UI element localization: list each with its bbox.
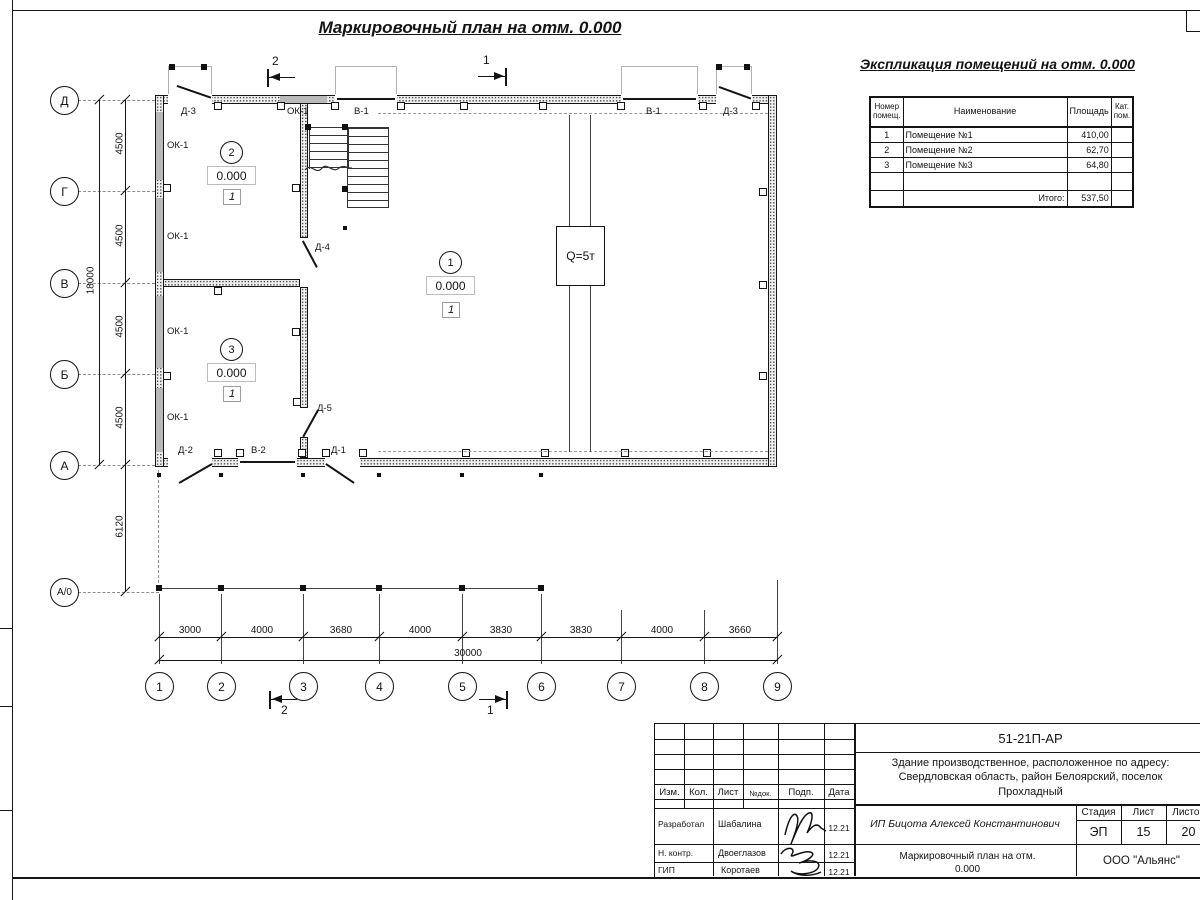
column-dot [377,473,381,477]
fold-mark [0,628,12,629]
dim-value: 3660 [718,625,762,636]
section-bar [506,691,508,709]
stamp-date: 12.21 [824,867,854,877]
dim-value: 4500 [115,305,126,349]
axis-bubble-5: 5 [448,672,477,701]
dim-line [99,100,100,465]
stamp-drawing-title: Маркировочный план на отм. 0.000 [859,850,1076,876]
room-area: 64,80 [1067,157,1111,172]
elevation-value: 0.000 [216,169,246,183]
schedule-total-row: Итого: 537,50 [870,190,1133,207]
pilaster [759,188,767,196]
room-number-bubble: 2 [220,141,243,164]
stamp-line [854,752,1200,753]
axis-bubble-g: Г [50,177,79,206]
stamp-line [854,724,856,876]
ext-line [303,594,304,664]
room-area: 410,00 [1067,127,1111,142]
ext-line [777,580,778,664]
pilaster [236,449,244,457]
stamp-line [655,769,854,770]
porch-post [169,64,175,70]
axis-bubble-7: 7 [607,672,636,701]
pilaster [163,372,171,380]
canopy-outline [335,66,397,97]
empty-cell [1067,172,1111,190]
floor-type-value: 1 [229,388,235,400]
porch-post [201,64,207,70]
elevation-value: 0.000 [435,279,465,293]
axis-label: Г [61,185,68,199]
stamp-sheets-value: 20 [1166,825,1200,839]
column-mark [218,585,224,591]
section-mark-1-bottom: 1 [487,703,494,717]
title-block: Изм. Кол. Лист №док. Подп. Дата Разработ… [654,723,1200,878]
pilaster [292,328,300,336]
dim-value: 4000 [240,625,284,636]
pilaster [359,449,367,457]
dim-value: 4000 [640,625,684,636]
stamp-col-ndok: №док. [743,789,778,798]
elevation-value: 0.000 [216,366,246,380]
elevation-mark: 0.000 [207,166,256,185]
schedule-empty-row [870,172,1133,190]
section-mark-2-top: 2 [272,54,279,68]
axis-bubble-8: 8 [690,672,719,701]
stamp-col-list: Лист [713,787,743,798]
axis-label: 6 [538,680,545,694]
room-number: 2 [228,147,234,159]
dim-value: 4500 [115,396,126,440]
pilaster [277,102,285,110]
pilaster [752,102,760,110]
stamp-drawing-title-line: Маркировочный план на отм. [859,850,1076,863]
signature [777,843,825,877]
stamp-stage-value: ЭП [1076,825,1121,839]
axis-label: 5 [459,680,466,694]
dim-value: 6120 [115,505,126,549]
colonnade-line [159,588,541,589]
pilaster [292,184,300,192]
frame-top [12,10,1200,11]
ext-line [159,594,160,664]
axis-bubble-9: 9 [763,672,792,701]
dim-value: 4000 [398,625,442,636]
stamp-col-podp: Подп. [778,787,824,798]
porch-post [744,64,750,70]
pilaster [759,372,767,380]
pilaster [214,287,222,295]
plan-title: Маркировочный план на отм. 0.000 [255,18,685,38]
room-cat [1111,142,1133,157]
stamp-line [655,799,854,800]
stamp-date: 12.21 [824,823,854,833]
stamp-line [655,754,854,755]
window-ok1 [155,388,164,452]
room-number-bubble: 3 [220,338,243,361]
section-bar [505,68,507,86]
door-label: Д-2 [178,445,193,456]
axis-label: А [60,459,68,473]
gate-leaf [240,461,295,463]
stamp-project-line: Здание производственное, расположенное п… [859,756,1200,770]
dim-value-total: 18000 [86,256,97,306]
room-area: 62,70 [1067,142,1111,157]
gate-leaf [623,98,696,100]
column-dot [301,473,305,477]
window-label: ОК-1 [287,106,308,117]
pilaster [322,449,330,457]
axis-bubble-3: 3 [289,672,318,701]
column-mark [300,585,306,591]
axis-label: Д [60,94,68,108]
pilaster [617,102,625,110]
axis-label: 7 [618,680,625,694]
column-dot [460,473,464,477]
axis-bubble-6: 6 [527,672,556,701]
axis-bubble-2: 2 [207,672,236,701]
room-number: 1 [447,257,453,269]
section-arrow [495,695,505,703]
stamp-name: Шабалина [718,819,761,829]
wall-interior-vertical [300,287,308,408]
section-arrow [272,695,282,703]
col-header-num: Номер помещ. [870,97,903,127]
stamp-role: ГИП [658,865,675,875]
section-mark-1-top: 1 [483,53,490,67]
dim-value: 3830 [559,625,603,636]
frame-left [12,0,13,900]
crane-zone-line [378,451,768,452]
axis-bubble-1: 1 [145,672,174,701]
stamp-company: ООО "Альянс" [1076,855,1200,867]
crane-box: Q=5т [556,226,605,286]
dim-value: 3680 [319,625,363,636]
empty-cell [1111,190,1133,207]
stamp-role: Разработал [658,819,704,829]
room-number: 3 [228,344,234,356]
axis-bubble-a0: А/0 [50,578,79,607]
stamp-line [655,784,854,785]
stamp-line [854,804,1200,806]
axis-label: Б [61,368,69,382]
door-label: Д-3 [723,106,738,117]
wall-right [768,95,777,467]
schedule-row: 3 Помещение №3 64,80 [870,157,1133,172]
window-ok1 [280,95,327,104]
pilaster [539,102,547,110]
axis-bubble-d: Д [50,86,79,115]
axis-dash-line [158,470,159,588]
axis-leader [78,374,155,375]
axis-label: 8 [701,680,708,694]
axis-label: 4 [376,680,383,694]
porch-outline [168,66,212,97]
crane-capacity-label: Q=5т [566,249,595,263]
stair-post [342,186,348,192]
floor-type-value: 1 [229,191,235,203]
stamp-project-line: Прохладный [859,785,1200,799]
fold-mark [0,810,12,811]
empty-cell [870,190,903,207]
pilaster [460,102,468,110]
schedule-row: 1 Помещение №1 410,00 [870,127,1133,142]
stamp-sheet-header: Лист [1121,807,1166,818]
section-arrow [494,72,504,80]
axis-leader [78,100,155,101]
axis-label: 9 [774,680,781,694]
dim-value: 4500 [115,214,126,258]
door-label: Д-5 [317,403,332,414]
gate-label: В-1 [646,106,661,117]
pilaster [298,449,306,457]
room-name: Помещение №2 [903,142,1067,157]
room-num: 2 [870,142,903,157]
gate-leaf [337,98,395,100]
column-mark [538,585,544,591]
stamp-role: Н. контр. [658,848,693,858]
axis-leader [78,465,155,466]
dim-value: 4500 [115,122,126,166]
drawing-sheet: Маркировочный план на отм. 0.000 Д Г В Б… [0,0,1200,900]
axis-label: 1 [156,680,163,694]
axis-label: 2 [218,680,225,694]
stamp-project-line: Свердловская область, район Белоярский, … [859,770,1200,784]
room-name: Помещение №1 [903,127,1067,142]
empty-cell [903,172,1067,190]
axis-leader [78,191,155,192]
pilaster [163,184,171,192]
elevation-mark: 0.000 [207,363,256,382]
room-number-bubble: 1 [439,251,462,274]
gate-label: В-1 [354,106,369,117]
axis-label: В [60,277,68,291]
porch-post [716,64,722,70]
wall-interior-horizontal [163,279,300,287]
room-cat [1111,127,1133,142]
axis-leader [78,592,159,593]
stamp-col-kol: Кол. [684,787,713,798]
col-header-name: Наименование [903,97,1067,127]
col-header-area: Площадь [1067,97,1111,127]
pilaster [214,102,222,110]
stair-post [305,124,311,130]
stamp-name: Коротаев [721,865,760,875]
window-ok1 [155,296,164,368]
stair-post [342,124,348,130]
stamp-line [655,844,1200,845]
canopy-outline [621,66,698,97]
stamp-client: ИП Бицота Алексей Константинович [854,818,1076,830]
total-value: 537,50 [1067,190,1111,207]
schedule-title: Экспликация помещений на отм. 0.000 [850,56,1145,72]
column-mark [459,585,465,591]
stamp-col-izm: Изм. [655,787,684,798]
stamp-drawing-title-line: 0.000 [859,863,1076,876]
schedule-header-row: Номер помещ. Наименование Площадь Кат. п… [870,97,1133,127]
axis-bubble-b: Б [50,360,79,389]
ext-line [221,594,222,664]
pilaster [331,102,339,110]
corner-notch [1186,31,1200,32]
window-ok1 [155,198,164,272]
stamp-line [655,739,854,740]
column-dot [539,473,543,477]
pilaster [759,281,767,289]
pilaster [293,398,301,406]
signature [781,809,827,847]
floor-type-value: 1 [448,304,454,316]
door-label: Д-3 [181,106,196,117]
axis-label: А/0 [57,587,72,598]
empty-cell [870,172,903,190]
stamp-doc-number: 51-21П-АР [854,731,1200,746]
elevation-mark: 0.000 [426,276,475,295]
axis-bubble-a: А [50,451,79,480]
stamp-project: Здание производственное, расположенное п… [859,756,1200,799]
stair-break-line [303,160,353,178]
stair-dot [343,226,347,230]
total-label: Итого: [903,190,1067,207]
ext-line [541,594,542,664]
room-cat [1111,157,1133,172]
corner-notch [1186,10,1187,32]
room-num: 3 [870,157,903,172]
door-label: Д-4 [315,242,330,253]
room-schedule-table: Номер помещ. Наименование Площадь Кат. п… [869,96,1134,208]
floor-type-mark: 1 [223,189,241,205]
dim-value: 3000 [168,625,212,636]
column-mark [376,585,382,591]
room-num: 1 [870,127,903,142]
section-arrow [270,73,280,81]
stamp-stage-header: Стадия [1076,807,1121,818]
crane-zone-line [378,113,768,114]
floor-type-mark: 1 [223,386,241,402]
column-dot [157,473,161,477]
gate-label: В-2 [251,445,266,456]
dim-value: 3830 [479,625,523,636]
column-dot [219,473,223,477]
stamp-date: 12.21 [824,850,854,860]
axis-label: 3 [300,680,307,694]
stair-flight-right [347,127,389,208]
window-label: ОК-1 [167,231,188,242]
axis-bubble-4: 4 [365,672,394,701]
section-mark-2-bottom: 2 [281,703,288,717]
column-mark [156,585,162,591]
stamp-line [1076,820,1200,821]
ext-line [379,594,380,664]
dim-line [159,637,778,638]
empty-cell [1111,172,1133,190]
window-ok1 [155,112,164,180]
dim-value-total: 30000 [438,648,498,659]
stamp-sheet-value: 15 [1121,825,1166,839]
pilaster [699,102,707,110]
floor-type-mark: 1 [442,302,460,318]
stamp-col-data: Дата [824,787,854,798]
door-label: Д-1 [331,445,346,456]
col-header-cat: Кат. пом. [1111,97,1133,127]
stamp-name: Двоеглазов [718,848,766,858]
schedule-row: 2 Помещение №2 62,70 [870,142,1133,157]
dim-line [159,660,778,661]
pilaster [397,102,405,110]
window-label: ОК-1 [167,412,188,423]
axis-bubble-v: В [50,269,79,298]
pilaster [214,449,222,457]
fold-mark [0,706,12,707]
window-label: ОК-1 [167,140,188,151]
room-name: Помещение №3 [903,157,1067,172]
window-label: ОК-1 [167,326,188,337]
stamp-sheets-header: Листов [1166,807,1200,818]
